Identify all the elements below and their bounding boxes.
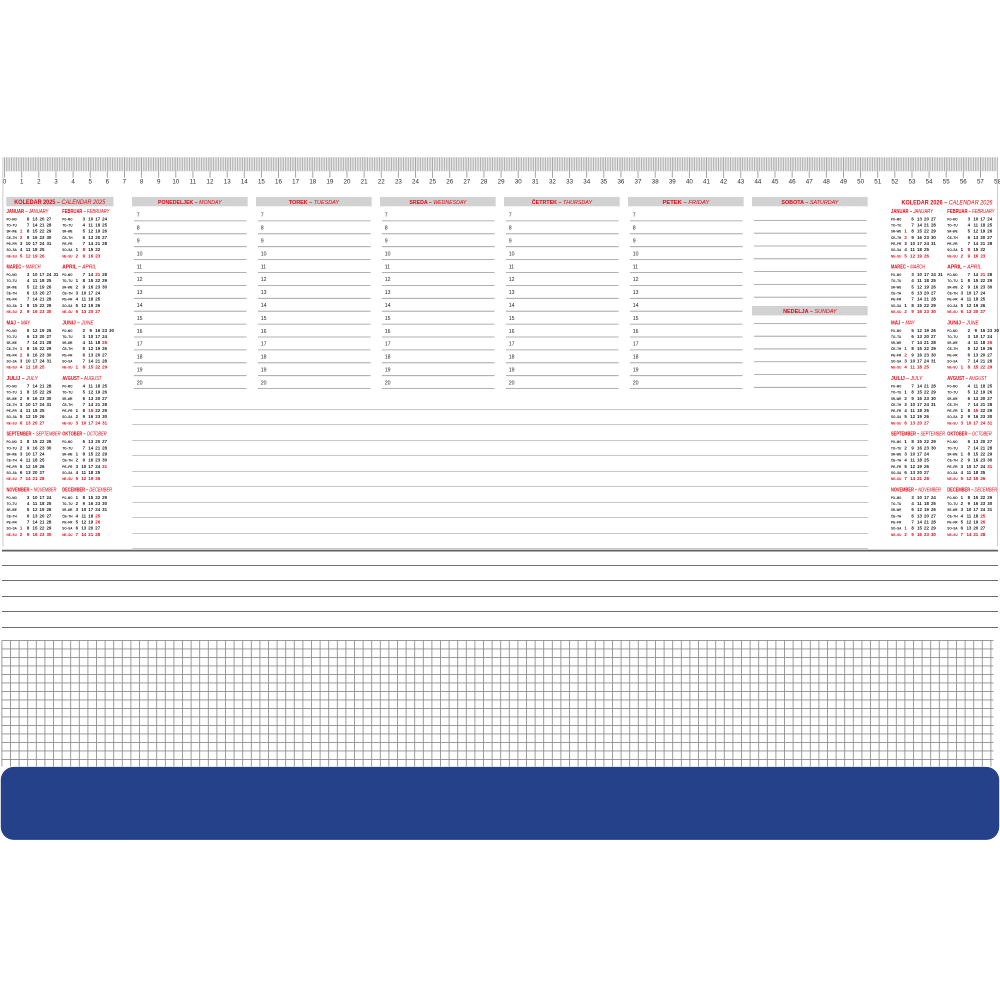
svg-text:10: 10 — [966, 420, 971, 425]
svg-text:12: 12 — [81, 520, 86, 525]
svg-text:27: 27 — [102, 396, 107, 401]
svg-text:30: 30 — [46, 445, 51, 450]
svg-text:SR–WE: SR–WE — [891, 508, 902, 512]
svg-text:24: 24 — [980, 420, 985, 425]
svg-text:24: 24 — [95, 464, 100, 469]
svg-text:12: 12 — [917, 284, 922, 289]
svg-text:23: 23 — [40, 309, 45, 314]
svg-text:SO–SA: SO–SA — [947, 360, 958, 364]
svg-text:ČE–TH: ČE–TH — [891, 458, 902, 463]
svg-text:22: 22 — [95, 365, 100, 370]
svg-text:7: 7 — [261, 213, 264, 219]
svg-text:PO–MO: PO–MO — [7, 329, 17, 333]
svg-text:30: 30 — [46, 532, 51, 537]
svg-text:30: 30 — [46, 309, 51, 314]
svg-text:18: 18 — [385, 355, 391, 361]
svg-text:SO–SA: SO–SA — [7, 527, 18, 531]
svg-text:27: 27 — [931, 513, 936, 518]
svg-text:JANUAR – JANUARY: JANUAR – JANUARY — [7, 209, 50, 215]
svg-text:ČE–TH: ČE–TH — [62, 346, 73, 351]
svg-text:20: 20 — [924, 291, 929, 296]
svg-text:PE–FR: PE–FR — [62, 242, 73, 246]
svg-text:26: 26 — [980, 303, 985, 308]
svg-text:12: 12 — [207, 179, 214, 186]
svg-text:NE–SU: NE–SU — [947, 533, 958, 537]
svg-text:27: 27 — [931, 216, 936, 221]
svg-text:25: 25 — [987, 384, 992, 389]
svg-text:SOBOTA – SATURDAY: SOBOTA – SATURDAY — [781, 200, 839, 206]
svg-text:13: 13 — [137, 290, 143, 296]
svg-text:SR–WE: SR–WE — [62, 397, 73, 401]
svg-text:PE–FR: PE–FR — [7, 353, 18, 357]
svg-text:8: 8 — [385, 226, 388, 232]
svg-text:10: 10 — [917, 495, 922, 500]
svg-text:25: 25 — [40, 458, 45, 463]
svg-text:ČE–TH: ČE–TH — [62, 458, 73, 463]
svg-text:28: 28 — [987, 241, 992, 246]
svg-text:13: 13 — [385, 290, 391, 296]
svg-text:23: 23 — [924, 309, 929, 314]
svg-text:SO–SA: SO–SA — [891, 527, 902, 531]
svg-text:SO–SA: SO–SA — [947, 415, 958, 419]
svg-text:11: 11 — [26, 365, 31, 370]
svg-text:21: 21 — [33, 476, 38, 481]
svg-text:PO–MO: PO–MO — [891, 329, 901, 333]
svg-text:8: 8 — [509, 226, 512, 232]
svg-text:17: 17 — [137, 342, 143, 348]
svg-text:20: 20 — [980, 396, 985, 401]
svg-text:11: 11 — [973, 340, 978, 345]
svg-text:PO–MO: PO–MO — [62, 440, 72, 444]
svg-text:22: 22 — [980, 408, 985, 413]
svg-text:11: 11 — [26, 247, 31, 252]
svg-text:19: 19 — [917, 414, 922, 419]
svg-text:28: 28 — [102, 241, 107, 246]
svg-text:10: 10 — [26, 452, 31, 457]
svg-text:11: 11 — [385, 264, 390, 270]
svg-text:NE–SU: NE–SU — [62, 477, 73, 481]
svg-text:ČE–TH: ČE–TH — [62, 291, 73, 296]
svg-text:12: 12 — [81, 476, 86, 481]
svg-text:21: 21 — [980, 359, 985, 364]
svg-text:SO–SA: SO–SA — [891, 360, 902, 364]
svg-text:20: 20 — [973, 309, 978, 314]
svg-text:27: 27 — [46, 334, 51, 339]
svg-text:18: 18 — [40, 501, 45, 506]
svg-text:28: 28 — [102, 272, 107, 277]
svg-text:14: 14 — [33, 340, 38, 345]
svg-text:25: 25 — [95, 470, 100, 475]
svg-text:16: 16 — [917, 445, 922, 450]
svg-text:56: 56 — [960, 179, 967, 186]
svg-text:31: 31 — [102, 507, 107, 512]
svg-text:PE–FR: PE–FR — [62, 298, 73, 302]
svg-text:25: 25 — [924, 408, 929, 413]
svg-text:PO–MO: PO–MO — [891, 273, 901, 277]
svg-text:21: 21 — [88, 532, 93, 537]
svg-text:29: 29 — [102, 278, 107, 283]
svg-text:17: 17 — [40, 495, 45, 500]
svg-text:TO–TU: TO–TU — [891, 391, 902, 395]
svg-text:PO–MO: PO–MO — [62, 385, 72, 389]
svg-text:34: 34 — [583, 179, 590, 186]
svg-text:20: 20 — [980, 439, 985, 444]
svg-text:OKTOBER – OCTOBER: OKTOBER – OCTOBER — [62, 432, 107, 438]
svg-text:NE–SU: NE–SU — [891, 254, 902, 258]
svg-text:1: 1 — [20, 179, 24, 186]
svg-text:KOLEDAR 2026 – CALENDAR 2026: KOLEDAR 2026 – CALENDAR 2026 — [902, 200, 993, 207]
svg-text:23: 23 — [924, 445, 929, 450]
svg-text:FEBRUAR – FEBRUARY: FEBRUAR – FEBRUARY — [947, 209, 995, 215]
svg-text:17: 17 — [40, 272, 45, 277]
svg-text:SO–SA: SO–SA — [947, 527, 958, 531]
svg-text:21: 21 — [95, 241, 100, 246]
svg-text:22: 22 — [40, 439, 45, 444]
svg-text:23: 23 — [40, 445, 45, 450]
svg-text:29: 29 — [931, 229, 936, 234]
svg-text:19: 19 — [95, 390, 100, 395]
svg-text:19: 19 — [509, 368, 515, 374]
svg-text:13: 13 — [81, 309, 86, 314]
svg-text:10: 10 — [910, 359, 915, 364]
svg-text:13: 13 — [224, 179, 231, 186]
svg-text:PE–FR: PE–FR — [947, 353, 958, 357]
svg-text:16: 16 — [917, 352, 922, 357]
svg-text:24: 24 — [40, 452, 45, 457]
svg-text:18: 18 — [973, 297, 978, 302]
svg-text:PE–FR: PE–FR — [62, 465, 73, 469]
svg-text:26: 26 — [102, 229, 107, 234]
svg-text:12: 12 — [917, 507, 922, 512]
svg-text:TO–TU: TO–TU — [7, 446, 18, 450]
svg-text:14: 14 — [33, 384, 38, 389]
svg-text:15: 15 — [917, 390, 922, 395]
svg-text:24: 24 — [924, 452, 929, 457]
svg-text:48: 48 — [823, 179, 830, 186]
svg-text:SO–SA: SO–SA — [7, 415, 18, 419]
svg-text:16: 16 — [33, 352, 38, 357]
svg-text:AVGUST – AUGUST: AVGUST – AUGUST — [947, 376, 987, 382]
svg-text:23: 23 — [95, 284, 100, 289]
svg-text:PE–FR: PE–FR — [947, 409, 958, 413]
svg-text:11: 11 — [26, 458, 31, 463]
svg-text:15: 15 — [33, 526, 38, 531]
svg-text:25: 25 — [987, 340, 992, 345]
svg-text:18: 18 — [137, 355, 143, 361]
svg-text:14: 14 — [917, 223, 922, 228]
svg-text:22: 22 — [924, 390, 929, 395]
svg-text:30: 30 — [46, 352, 51, 357]
svg-text:17: 17 — [973, 420, 978, 425]
svg-text:26: 26 — [46, 284, 51, 289]
svg-text:26: 26 — [95, 476, 100, 481]
svg-text:18: 18 — [95, 384, 100, 389]
svg-text:15: 15 — [137, 316, 143, 322]
svg-text:26: 26 — [924, 253, 929, 258]
svg-text:8: 8 — [261, 226, 264, 232]
svg-text:30: 30 — [987, 458, 992, 463]
svg-text:30: 30 — [931, 309, 936, 314]
svg-text:PO–MO: PO–MO — [7, 385, 17, 389]
svg-text:18: 18 — [88, 513, 93, 518]
svg-text:ČE–TH: ČE–TH — [891, 235, 902, 240]
svg-text:9: 9 — [157, 179, 161, 186]
svg-text:26: 26 — [980, 520, 985, 525]
svg-text:14: 14 — [966, 532, 971, 537]
svg-text:21: 21 — [973, 532, 978, 537]
svg-text:16: 16 — [275, 179, 282, 186]
svg-text:ČE–TH: ČE–TH — [62, 513, 73, 518]
svg-text:23: 23 — [40, 235, 45, 240]
svg-text:13: 13 — [88, 396, 93, 401]
svg-text:20: 20 — [40, 216, 45, 221]
svg-text:31: 31 — [931, 241, 936, 246]
svg-text:19: 19 — [973, 520, 978, 525]
svg-text:13: 13 — [966, 309, 971, 314]
svg-text:29: 29 — [102, 452, 107, 457]
svg-text:20: 20 — [385, 380, 391, 386]
svg-text:SR–WE: SR–WE — [891, 230, 902, 234]
svg-text:25: 25 — [429, 179, 436, 186]
svg-text:26: 26 — [95, 520, 100, 525]
svg-text:19: 19 — [633, 368, 639, 374]
svg-text:10: 10 — [81, 420, 86, 425]
svg-text:10: 10 — [917, 272, 922, 277]
svg-text:29: 29 — [102, 495, 107, 500]
svg-text:28: 28 — [46, 340, 51, 345]
svg-text:16: 16 — [33, 445, 38, 450]
svg-text:PO–MO: PO–MO — [7, 217, 17, 221]
svg-text:PO–MO: PO–MO — [947, 440, 957, 444]
svg-text:28: 28 — [46, 384, 51, 389]
svg-text:PE–FR: PE–FR — [947, 521, 958, 525]
svg-text:18: 18 — [40, 278, 45, 283]
svg-text:27: 27 — [102, 352, 107, 357]
svg-text:SO–SA: SO–SA — [62, 248, 73, 252]
svg-text:SREDA – WEDNESDAY: SREDA – WEDNESDAY — [409, 200, 467, 206]
svg-text:10: 10 — [33, 272, 38, 277]
svg-text:24: 24 — [46, 272, 51, 277]
svg-text:16: 16 — [917, 532, 922, 537]
svg-text:PE–FR: PE–FR — [891, 465, 902, 469]
svg-text:15: 15 — [88, 452, 93, 457]
svg-text:12: 12 — [917, 328, 922, 333]
svg-text:19: 19 — [88, 520, 93, 525]
svg-text:ČE–TH: ČE–TH — [7, 458, 18, 463]
svg-text:10: 10 — [26, 359, 31, 364]
svg-text:ČE–TH: ČE–TH — [947, 458, 958, 463]
svg-text:27: 27 — [46, 216, 51, 221]
svg-text:SR–WE: SR–WE — [7, 453, 18, 457]
svg-text:10: 10 — [910, 402, 915, 407]
svg-text:SO–SA: SO–SA — [62, 471, 73, 475]
svg-text:PETEK – FRIDAY: PETEK – FRIDAY — [662, 200, 710, 206]
svg-text:19: 19 — [33, 414, 38, 419]
svg-text:13: 13 — [33, 334, 38, 339]
svg-text:16: 16 — [88, 284, 93, 289]
svg-text:25: 25 — [46, 278, 51, 283]
svg-text:4: 4 — [71, 179, 75, 186]
svg-text:25: 25 — [95, 297, 100, 302]
svg-text:19: 19 — [40, 507, 45, 512]
svg-text:18: 18 — [980, 223, 985, 228]
svg-text:51: 51 — [874, 179, 881, 186]
svg-text:29: 29 — [46, 346, 51, 351]
svg-text:ČE–TH: ČE–TH — [891, 402, 902, 407]
svg-text:22: 22 — [95, 278, 100, 283]
svg-text:21: 21 — [95, 272, 100, 277]
svg-text:SR–WE: SR–WE — [891, 285, 902, 289]
svg-text:52: 52 — [891, 179, 898, 186]
svg-text:10: 10 — [633, 251, 639, 257]
svg-text:8: 8 — [140, 179, 144, 186]
svg-text:PO–MO: PO–MO — [62, 217, 72, 221]
svg-text:10: 10 — [81, 464, 86, 469]
svg-text:20: 20 — [40, 334, 45, 339]
svg-text:20: 20 — [95, 396, 100, 401]
svg-text:23: 23 — [980, 458, 985, 463]
svg-text:37: 37 — [635, 179, 642, 186]
svg-text:27: 27 — [980, 526, 985, 531]
svg-text:SO–SA: SO–SA — [947, 471, 958, 475]
svg-text:53: 53 — [909, 179, 916, 186]
svg-text:10: 10 — [973, 216, 978, 221]
svg-text:29: 29 — [102, 365, 107, 370]
svg-text:TO–TU: TO–TU — [947, 279, 958, 283]
svg-text:17: 17 — [917, 452, 922, 457]
svg-text:TO–TU: TO–TU — [62, 446, 73, 450]
svg-text:30: 30 — [931, 532, 936, 537]
svg-text:24: 24 — [40, 359, 45, 364]
svg-text:15: 15 — [88, 247, 93, 252]
svg-text:23: 23 — [395, 179, 402, 186]
svg-text:12: 12 — [973, 346, 978, 351]
svg-text:APRIL – APRIL: APRIL – APRIL — [947, 265, 981, 271]
svg-text:10: 10 — [966, 464, 971, 469]
svg-text:12: 12 — [33, 507, 38, 512]
svg-text:DECEMBER – DECEMBER: DECEMBER – DECEMBER — [62, 487, 112, 493]
svg-text:17: 17 — [95, 216, 100, 221]
svg-text:12: 12 — [966, 520, 971, 525]
svg-text:12: 12 — [88, 346, 93, 351]
svg-text:15: 15 — [88, 365, 93, 370]
svg-text:TO–TU: TO–TU — [62, 279, 73, 283]
svg-text:39: 39 — [669, 179, 676, 186]
svg-text:20: 20 — [924, 334, 929, 339]
svg-text:26: 26 — [931, 284, 936, 289]
svg-text:PE–FR: PE–FR — [891, 409, 902, 413]
svg-text:30: 30 — [515, 179, 522, 186]
svg-text:26: 26 — [980, 476, 985, 481]
svg-text:31: 31 — [938, 272, 943, 277]
svg-text:9: 9 — [633, 239, 636, 245]
svg-text:16: 16 — [33, 309, 38, 314]
svg-text:ČETRTEK – THURSDAY: ČETRTEK – THURSDAY — [532, 199, 593, 206]
svg-text:MAJ – MAY: MAJ – MAY — [7, 320, 31, 326]
svg-text:SR–WE: SR–WE — [947, 341, 958, 345]
svg-text:21: 21 — [924, 384, 929, 389]
svg-text:20: 20 — [95, 352, 100, 357]
svg-text:19: 19 — [385, 368, 391, 374]
svg-text:ČE–TH: ČE–TH — [891, 291, 902, 296]
svg-text:10: 10 — [910, 241, 915, 246]
svg-text:NE–SU: NE–SU — [947, 310, 958, 314]
svg-text:24: 24 — [95, 507, 100, 512]
svg-text:13: 13 — [261, 290, 267, 296]
svg-text:SR–WE: SR–WE — [62, 508, 73, 512]
svg-text:54: 54 — [926, 179, 933, 186]
svg-text:NE–SU: NE–SU — [7, 477, 18, 481]
svg-text:16: 16 — [33, 235, 38, 240]
svg-text:27: 27 — [931, 334, 936, 339]
svg-text:24: 24 — [102, 334, 107, 339]
svg-text:27: 27 — [987, 235, 992, 240]
svg-text:18: 18 — [973, 513, 978, 518]
svg-text:13: 13 — [88, 235, 93, 240]
svg-text:12: 12 — [88, 229, 93, 234]
svg-text:18: 18 — [509, 355, 515, 361]
svg-text:16: 16 — [95, 328, 100, 333]
svg-text:22: 22 — [40, 526, 45, 531]
svg-text:PO–MO: PO–MO — [891, 385, 901, 389]
svg-text:14: 14 — [261, 303, 267, 309]
svg-text:31: 31 — [931, 402, 936, 407]
svg-text:21: 21 — [361, 179, 368, 186]
svg-text:PONEDELJEK – MONDAY: PONEDELJEK – MONDAY — [158, 200, 223, 206]
svg-text:SO–SA: SO–SA — [62, 527, 73, 531]
svg-text:NE–SU: NE–SU — [7, 310, 18, 314]
svg-text:15: 15 — [973, 278, 978, 283]
svg-text:11: 11 — [967, 470, 972, 475]
svg-text:21: 21 — [924, 340, 929, 345]
svg-text:26: 26 — [924, 414, 929, 419]
svg-text:15: 15 — [33, 303, 38, 308]
svg-text:32: 32 — [549, 179, 556, 186]
svg-text:17: 17 — [973, 507, 978, 512]
svg-text:TO–TU: TO–TU — [62, 335, 73, 339]
svg-text:21: 21 — [980, 402, 985, 407]
svg-text:14: 14 — [33, 223, 38, 228]
svg-text:17: 17 — [33, 452, 38, 457]
svg-text:14: 14 — [88, 445, 93, 450]
svg-text:23: 23 — [40, 532, 45, 537]
svg-text:18: 18 — [973, 470, 978, 475]
svg-text:30: 30 — [987, 501, 992, 506]
svg-text:20: 20 — [509, 380, 515, 386]
svg-text:TOREK – TUESDAY: TOREK – TUESDAY — [289, 200, 340, 206]
svg-text:14: 14 — [910, 476, 915, 481]
svg-text:29: 29 — [931, 390, 936, 395]
svg-text:SO–SA: SO–SA — [947, 248, 958, 252]
svg-text:NE–SU: NE–SU — [7, 254, 18, 258]
svg-text:PE–FR: PE–FR — [947, 465, 958, 469]
svg-text:28: 28 — [102, 359, 107, 364]
svg-text:NE–SU: NE–SU — [891, 310, 902, 314]
svg-text:20: 20 — [633, 380, 639, 386]
svg-text:8: 8 — [633, 226, 636, 232]
svg-text:26: 26 — [987, 346, 992, 351]
svg-text:11: 11 — [973, 223, 978, 228]
svg-text:22: 22 — [924, 526, 929, 531]
svg-text:25: 25 — [924, 458, 929, 463]
svg-text:29: 29 — [987, 365, 992, 370]
svg-text:28: 28 — [40, 476, 45, 481]
svg-text:TO–TU: TO–TU — [7, 224, 18, 228]
svg-text:TO–TU: TO–TU — [891, 502, 902, 506]
svg-text:13: 13 — [917, 513, 922, 518]
svg-text:18: 18 — [95, 223, 100, 228]
svg-text:20: 20 — [917, 420, 922, 425]
